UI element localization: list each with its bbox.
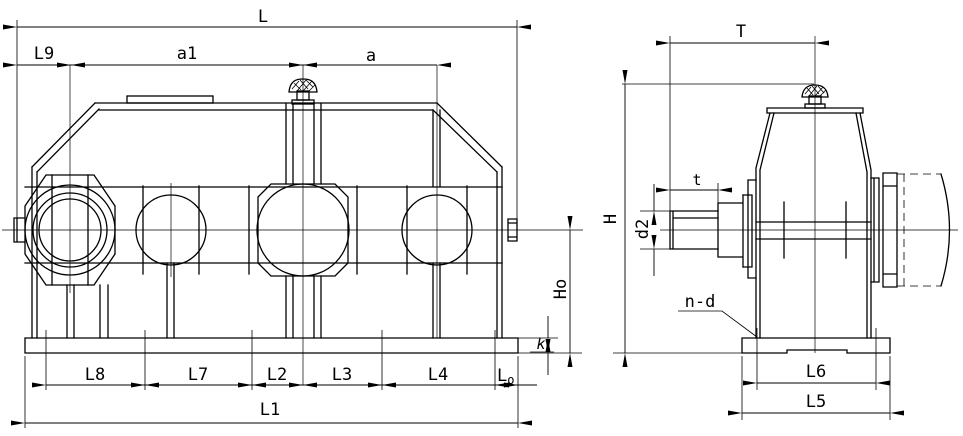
front-view	[2, 20, 742, 428]
label-Lo: Lo	[497, 366, 514, 387]
label-k: k	[536, 335, 545, 353]
side-view	[622, 36, 958, 420]
label-L3: L3	[332, 365, 352, 385]
label-Ho: Ho	[551, 279, 571, 299]
gearbox-dimension-drawing: L L9 a1 a T t H Ho d2 k n-d L8 L7 L2 L3 …	[0, 0, 963, 436]
bore-band-lines	[25, 187, 502, 263]
label-L5: L5	[806, 392, 826, 412]
label-L7: L7	[188, 365, 208, 385]
label-L: L	[258, 7, 268, 27]
front-centerlines	[2, 20, 742, 428]
label-n-d: n-d	[685, 292, 716, 312]
label-L9: L9	[34, 44, 54, 64]
front-housing-outline	[32, 103, 502, 338]
label-L4: L4	[428, 365, 448, 385]
dimension-lines	[17, 27, 890, 423]
n-d-leader	[678, 311, 757, 337]
inspection-cover	[127, 96, 213, 103]
label-L1: L1	[260, 400, 280, 420]
label-T: T	[736, 22, 746, 42]
label-L8: L8	[85, 365, 105, 385]
drawing-canvas: L L9 a1 a T t H Ho d2 k n-d L8 L7 L2 L3 …	[0, 0, 963, 436]
dimension-labels: L L9 a1 a T t H Ho d2 k n-d L8 L7 L2 L3 …	[34, 7, 826, 420]
side-input-shaft	[670, 180, 756, 278]
side-base-plate	[742, 338, 890, 353]
side-housing-outline	[756, 108, 871, 338]
label-a: a	[366, 46, 376, 66]
label-d2: d2	[633, 219, 653, 239]
label-H: H	[601, 214, 621, 224]
label-L6: L6	[806, 362, 826, 382]
label-L2: L2	[267, 365, 287, 385]
label-t: t	[692, 171, 701, 189]
front-base-plate	[25, 338, 518, 353]
label-a1: a1	[177, 44, 197, 64]
housing-ribs	[67, 104, 440, 338]
